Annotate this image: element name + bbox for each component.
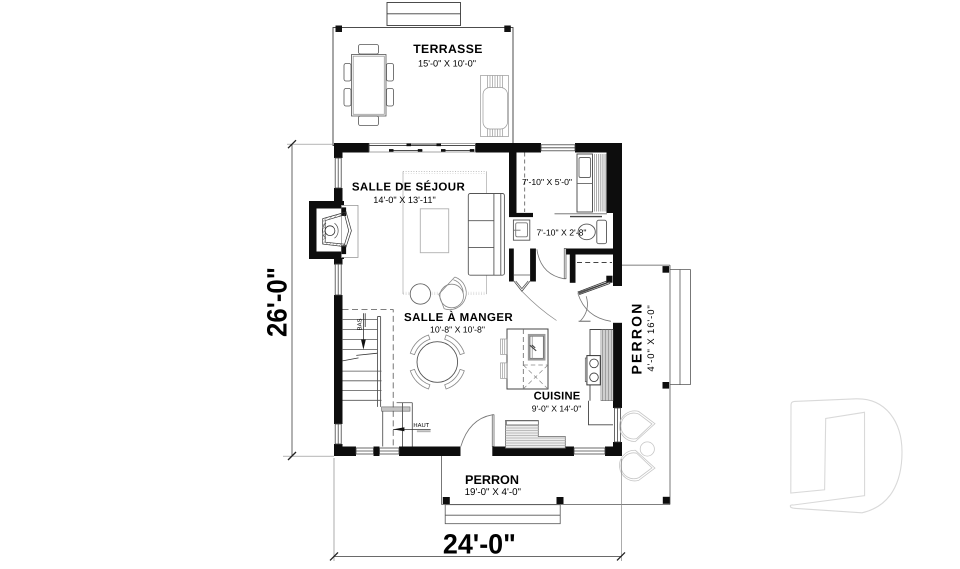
- svg-text:15'-0" X 10'-0": 15'-0" X 10'-0": [418, 58, 476, 68]
- svg-text:SALLE À MANGER: SALLE À MANGER: [404, 310, 513, 324]
- svg-text:CUISINE: CUISINE: [534, 391, 581, 403]
- svg-text:PERRON: PERRON: [629, 301, 645, 374]
- svg-text:24'-0": 24'-0": [443, 529, 516, 560]
- svg-text:14'-0" X 13'-11": 14'-0" X 13'-11": [373, 195, 435, 205]
- svg-text:9'-0" X 14'-0": 9'-0" X 14'-0": [532, 404, 582, 414]
- svg-text:19'-0" X 4'-0": 19'-0" X 4'-0": [465, 487, 522, 498]
- svg-text:10'-8" X 10'-8": 10'-8" X 10'-8": [430, 325, 485, 335]
- svg-text:BAS: BAS: [357, 318, 364, 330]
- svg-text:26'-0": 26'-0": [262, 267, 293, 337]
- svg-text:TERRASSE: TERRASSE: [413, 42, 483, 56]
- svg-text:PERRON: PERRON: [465, 473, 519, 487]
- svg-text:4'-0" X 16'-0": 4'-0" X 16'-0": [646, 304, 657, 371]
- svg-text:7'-10" X 2'-8": 7'-10" X 2'-8": [536, 228, 586, 238]
- svg-text:HAUT: HAUT: [413, 423, 429, 429]
- svg-text:7'-10" X 5'-0": 7'-10" X 5'-0": [522, 177, 572, 187]
- svg-text:SALLE DE SÉJOUR: SALLE DE SÉJOUR: [352, 180, 466, 194]
